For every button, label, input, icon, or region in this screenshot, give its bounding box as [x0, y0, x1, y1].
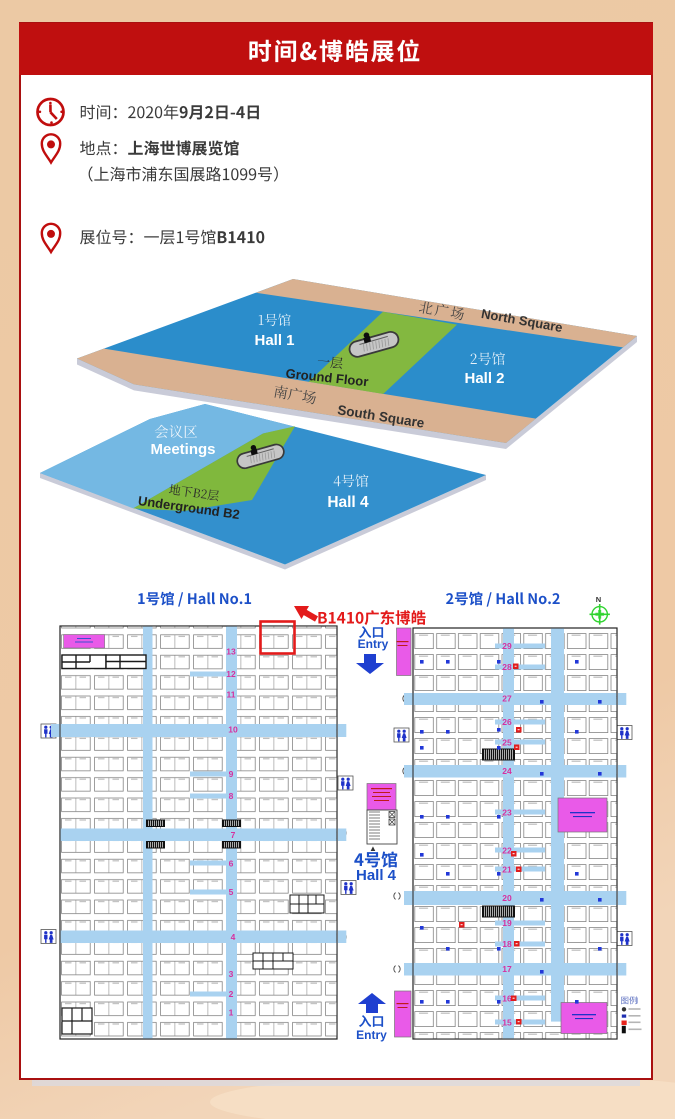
svg-text:19: 19	[502, 918, 512, 928]
svg-text:21: 21	[502, 865, 512, 875]
svg-text:5: 5	[229, 887, 234, 897]
svg-text:26: 26	[502, 717, 512, 727]
svg-text:25: 25	[502, 738, 512, 748]
svg-text:15: 15	[502, 1018, 512, 1028]
svg-text:Entry: Entry	[358, 637, 389, 651]
svg-text:6: 6	[229, 859, 234, 869]
svg-text:22: 22	[502, 846, 512, 856]
svg-text:24: 24	[502, 766, 512, 776]
svg-text:Hall 2: Hall 2	[464, 370, 504, 387]
svg-text:20: 20	[502, 893, 512, 903]
svg-text:9: 9	[229, 769, 234, 779]
svg-text:▲: ▲	[369, 844, 377, 853]
svg-text:Hall 1: Hall 1	[254, 332, 294, 349]
svg-text:Hall 4: Hall 4	[327, 494, 369, 511]
svg-text:11: 11	[227, 690, 236, 700]
svg-text:Entry: Entry	[356, 1028, 387, 1042]
svg-text:2: 2	[229, 989, 234, 999]
svg-text:3: 3	[229, 969, 234, 979]
svg-text:1: 1	[229, 1008, 234, 1018]
svg-text:28: 28	[502, 662, 512, 672]
svg-text:29: 29	[502, 641, 512, 651]
svg-text:Meetings: Meetings	[150, 441, 215, 458]
svg-text:12: 12	[226, 669, 236, 679]
svg-text:18: 18	[502, 939, 512, 949]
svg-text:27: 27	[502, 694, 512, 704]
svg-text:16: 16	[502, 994, 512, 1004]
svg-text:8: 8	[229, 791, 234, 801]
svg-text:13: 13	[226, 647, 236, 657]
svg-text:4: 4	[231, 932, 236, 942]
svg-text:17: 17	[502, 964, 512, 974]
svg-text:10: 10	[228, 725, 238, 735]
svg-text:7: 7	[231, 830, 236, 840]
svg-text:23: 23	[502, 808, 512, 818]
svg-text:I: I	[636, 997, 638, 1006]
svg-text:N: N	[596, 595, 601, 604]
svg-text:Hall 4: Hall 4	[356, 867, 397, 884]
